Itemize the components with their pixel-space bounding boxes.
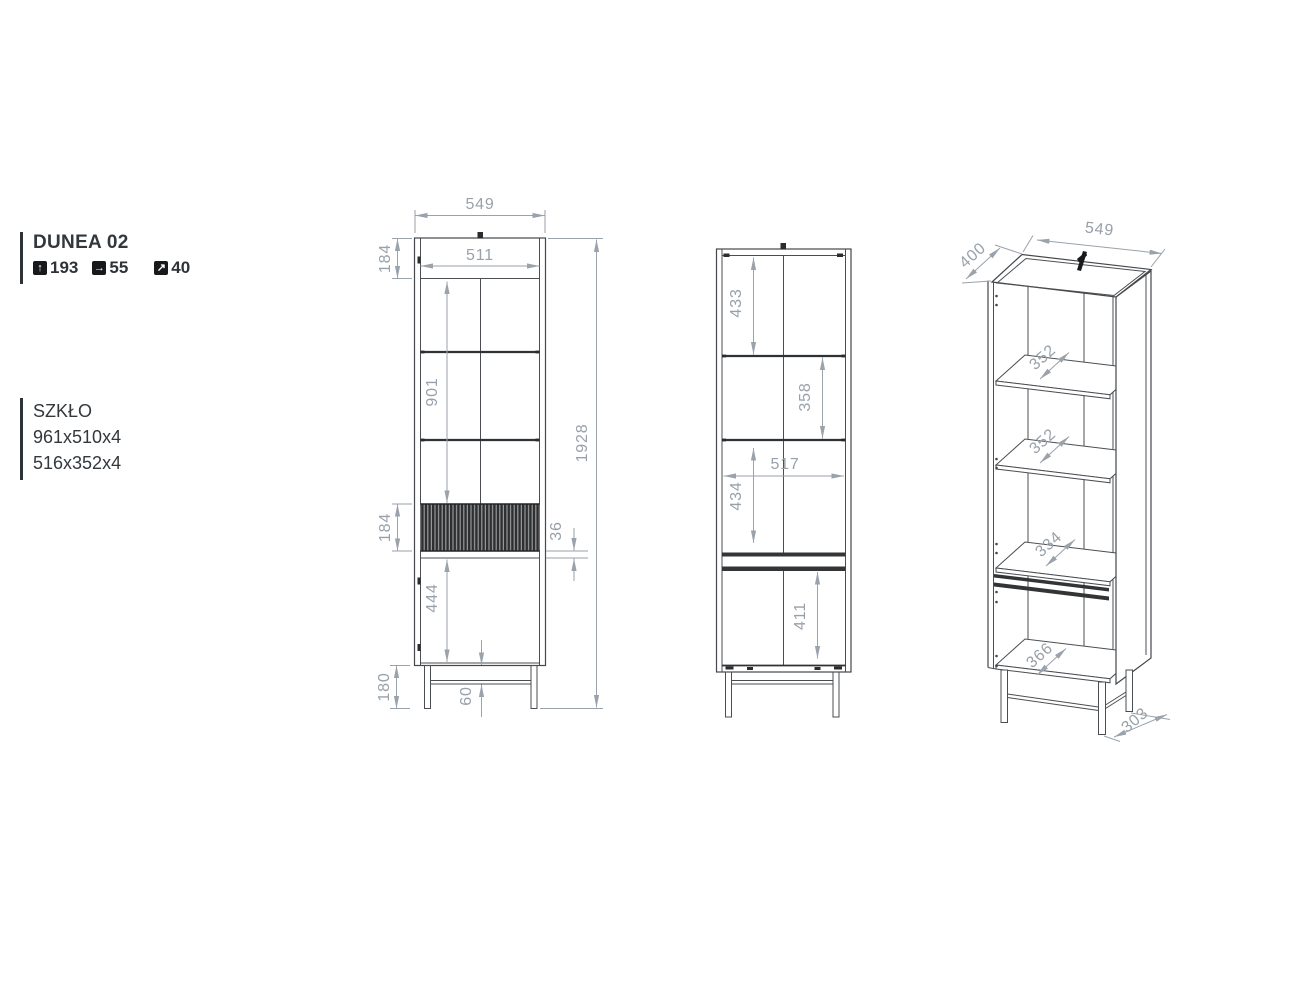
cabinet-isometric — [988, 251, 1151, 735]
shelf-pin-holes — [995, 295, 998, 668]
leg-left — [726, 672, 732, 717]
stat-depth-value: 40 — [171, 258, 190, 278]
top-handle-mark — [781, 243, 787, 250]
product-name: DUNEA 02 — [33, 232, 190, 254]
capacity-stats: ↑ 193 → 55 ↗ 40 — [33, 258, 190, 278]
dim-gap: 36 — [548, 521, 565, 540]
band-bar — [722, 553, 846, 557]
leg-right — [833, 672, 839, 717]
glass-accent-bar — [20, 398, 23, 480]
technical-drawing-sheet: DUNEA 02 ↑ 193 → 55 ↗ 40 SZKŁO 961x — [0, 0, 1308, 981]
front-elevation-view: 549 511 184 901 1928 184 36 444 180 60 — [370, 195, 620, 725]
hinge-mark — [418, 644, 421, 651]
dim-width: 549 — [1084, 219, 1115, 239]
fluted-band — [421, 504, 540, 551]
dim-inner-width: 517 — [770, 456, 799, 473]
title-accent-bar — [20, 232, 23, 284]
legs — [1001, 670, 1133, 735]
top-handle-mark — [478, 232, 484, 239]
stat-width-value: 55 — [109, 258, 128, 278]
hinge-mark — [418, 578, 421, 585]
cabinet-front-outline — [415, 232, 546, 709]
stat-height-value: 193 — [50, 258, 78, 278]
stat-depth: ↗ 40 — [154, 258, 190, 278]
dim-compartment3: 434 — [728, 481, 745, 510]
glass-size-2: 516x352x4 — [33, 450, 121, 476]
dim-depth: 400 — [956, 240, 989, 272]
dim-door-height: 444 — [424, 583, 441, 612]
arrow-right-icon: → — [92, 261, 106, 275]
dim-leg-height: 180 — [376, 672, 393, 701]
leg-right — [531, 666, 537, 709]
hinge-mark — [418, 257, 421, 264]
section-view: 433 358 517 434 411 — [690, 230, 900, 730]
stat-width: → 55 — [92, 258, 128, 278]
dim-band-height: 184 — [377, 513, 394, 542]
dim-leg-offset: 60 — [458, 686, 475, 705]
product-title-block: DUNEA 02 ↑ 193 → 55 ↗ 40 — [20, 232, 190, 284]
dim-compartment1: 433 — [728, 288, 745, 317]
dim-inner-width: 511 — [466, 247, 494, 264]
glass-spec-block: SZKŁO 961x510x4 516x352x4 — [20, 398, 121, 480]
arrow-up-icon: ↑ — [33, 261, 47, 275]
dim-width: 549 — [465, 196, 494, 213]
glass-size-1: 961x510x4 — [33, 424, 121, 450]
front-view-dimensions — [390, 210, 603, 717]
dim-compartment4: 411 — [792, 602, 809, 630]
glass-label: SZKŁO — [33, 398, 121, 424]
leg-left — [425, 666, 431, 709]
arrow-up-right-icon: ↗ — [154, 261, 168, 275]
stat-height: ↑ 193 — [33, 258, 78, 278]
dim-leg-depth: 303 — [1118, 705, 1151, 737]
dim-glass-section: 901 — [424, 377, 441, 406]
band-bar — [722, 567, 846, 572]
dim-top-section: 184 — [377, 244, 394, 273]
isometric-view: 400 549 352 352 334 366 303 — [950, 215, 1220, 760]
dim-compartment2: 358 — [797, 382, 814, 411]
dim-total-height: 1928 — [574, 424, 591, 463]
